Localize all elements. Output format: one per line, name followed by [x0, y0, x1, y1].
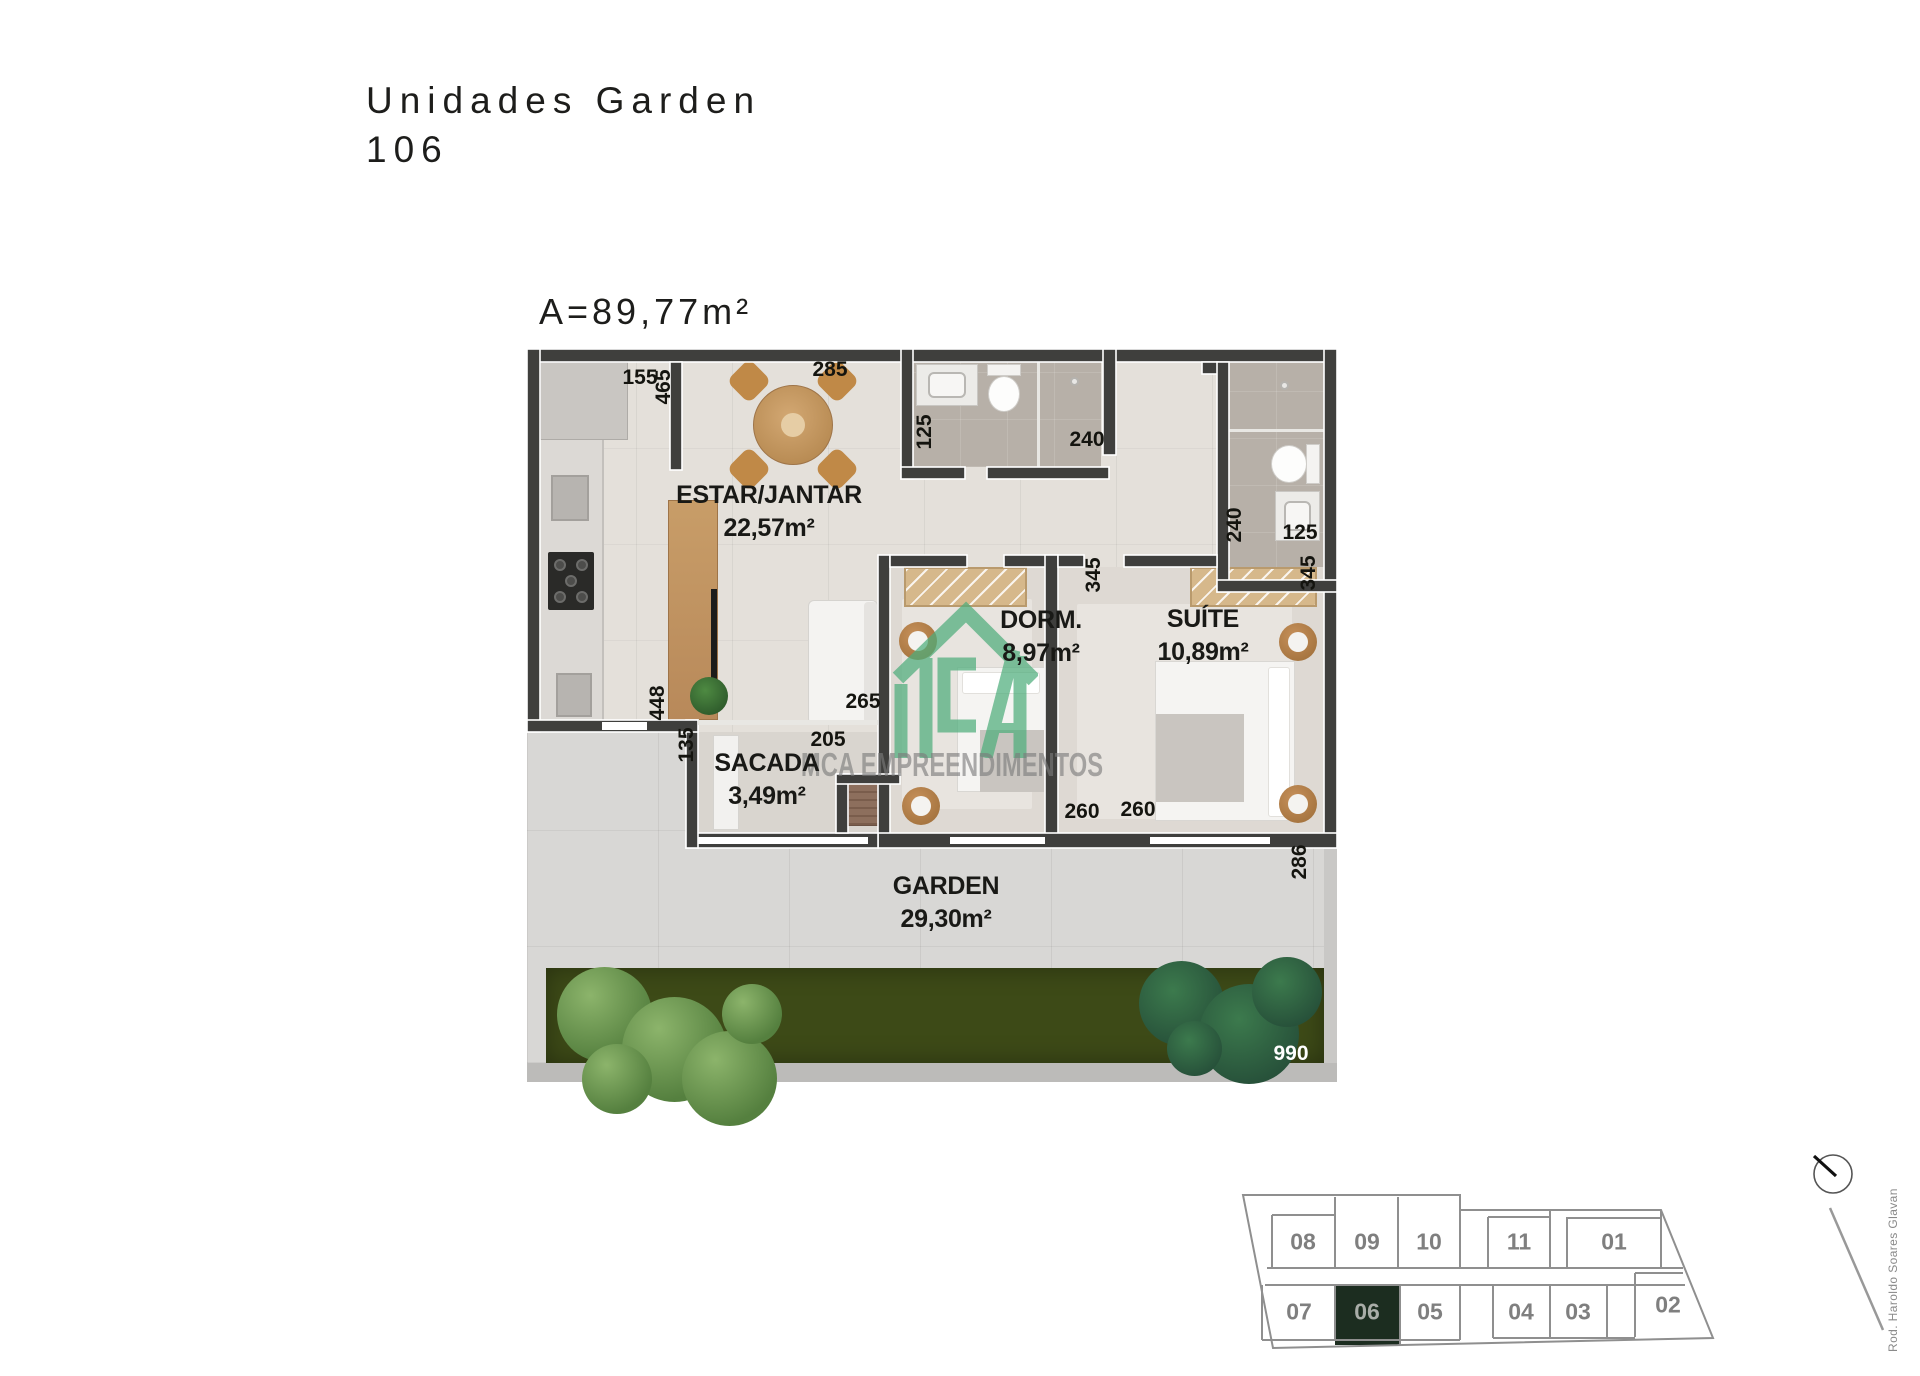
room-label-garden: GARDEN 29,30m²: [893, 870, 1000, 936]
unit-cell-10: 10: [1416, 1229, 1442, 1256]
room-label-dorm: DORM. 8,97m²: [1000, 604, 1082, 670]
dim-label: 125: [913, 414, 937, 449]
dim-label: 125: [1282, 521, 1317, 545]
dim-label: 285: [812, 358, 847, 382]
dim-label: 260: [1120, 798, 1155, 822]
building-key-plan: 08 09 10 11 01 07 06 05 04 03 02: [1237, 1140, 1917, 1371]
dim-label: 448: [646, 685, 670, 720]
room-label-estar: ESTAR/JANTAR 22,57m²: [676, 479, 862, 545]
room-label-suite: SUÍTE 10,89m²: [1157, 603, 1248, 669]
unit-cell-07: 07: [1286, 1299, 1312, 1326]
unit-cell-11: 11: [1507, 1229, 1531, 1256]
unit-cell-02: 02: [1655, 1292, 1681, 1319]
road-line: [1830, 1208, 1883, 1330]
unit-cell-09: 09: [1354, 1229, 1380, 1256]
dim-label: 345: [1297, 555, 1321, 590]
dim-label: 260: [1064, 800, 1099, 824]
unit-cell-01: 01: [1601, 1229, 1627, 1256]
key-plan-drawing: [1237, 1140, 1917, 1371]
dim-label: 990: [1273, 1042, 1308, 1066]
dim-label: 345: [1082, 557, 1106, 592]
compass-icon: [1814, 1155, 1852, 1193]
room-label-sacada: SACADA 3,49m²: [714, 747, 819, 813]
dim-label: 286: [1288, 844, 1312, 879]
dim-label: 240: [1223, 507, 1247, 542]
page-title-line2: 106: [366, 125, 761, 174]
unit-cell-05: 05: [1417, 1299, 1443, 1326]
dim-label: 205: [810, 728, 845, 752]
page-title-line1: Unidades Garden: [366, 76, 761, 125]
page-title: Unidades Garden 106: [366, 76, 761, 174]
total-area-label: A=89,77m²: [539, 291, 752, 333]
floorplan-sheet: { "page": { "title_line1": "Unidades Gar…: [0, 0, 1920, 1371]
dim-label: 265: [845, 690, 880, 714]
dim-label: 240: [1069, 428, 1104, 452]
dim-label: 465: [652, 369, 676, 404]
street-name-label: Rod. Haroldo Soares Glavan: [1886, 1192, 1900, 1352]
unit-cell-08: 08: [1290, 1229, 1316, 1256]
dim-label: 135: [675, 727, 699, 762]
unit-cell-03: 03: [1565, 1299, 1591, 1326]
watermark-brand: MCA EMPREENDIMENTOS: [801, 746, 1103, 785]
unit-cell-06-highlighted: 06: [1354, 1299, 1380, 1326]
floor-plan: MCA EMPREENDIMENTOS ESTAR/JANTAR 22,57m²…: [527, 349, 1337, 1082]
unit-cell-04: 04: [1508, 1299, 1534, 1326]
